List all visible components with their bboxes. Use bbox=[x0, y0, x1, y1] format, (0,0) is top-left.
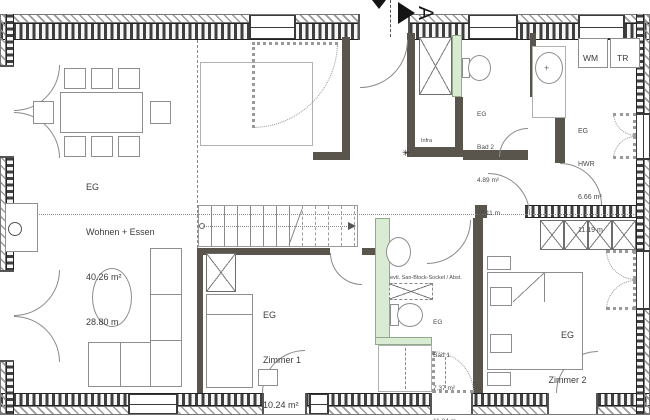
french-door-left-bottom-opening bbox=[0, 270, 14, 362]
room-name: HWR bbox=[578, 159, 603, 170]
entrance-door-arc bbox=[360, 40, 408, 88]
sink-bad1 bbox=[386, 237, 411, 267]
sofa-chaise bbox=[150, 248, 182, 387]
window-hwr-right bbox=[636, 113, 650, 160]
dining-table bbox=[60, 92, 143, 133]
wall-bad2-installation bbox=[452, 35, 462, 97]
wall-bad1-installation-stub bbox=[375, 337, 432, 345]
stove-flue-circle bbox=[8, 222, 22, 236]
room-area: 10.24 m² bbox=[263, 398, 301, 413]
stair-break-line bbox=[289, 209, 303, 245]
nightstand-zimmer2 bbox=[487, 256, 511, 270]
floor-plan-canvas: A bbox=[0, 0, 650, 420]
window-hwr-top bbox=[578, 15, 625, 39]
stair-direction-arrow-icon bbox=[348, 222, 356, 230]
staircase bbox=[198, 205, 358, 247]
bed-zimmer1-pillow-line bbox=[207, 314, 252, 315]
dining-chair bbox=[64, 136, 86, 157]
sanitary-block-dashed bbox=[389, 283, 433, 300]
sofa-cushion-line bbox=[151, 340, 181, 341]
french-door-left-bottom-leaf1-arc bbox=[14, 270, 60, 316]
room-floor: EG bbox=[433, 317, 456, 328]
section-marker-label: A bbox=[413, 6, 437, 20]
room-label-bad1: EG Bad 1 7.37 m² 11.34 m bbox=[433, 295, 456, 420]
shower-bad1-divider bbox=[405, 348, 406, 389]
dining-chair bbox=[150, 101, 171, 124]
wardrobe-cell-icon bbox=[612, 220, 636, 250]
french-door-left-top-opening bbox=[0, 65, 14, 158]
room-name: Zimmer 2 bbox=[510, 373, 625, 388]
zimmer2-right-door-leaf1-arc bbox=[606, 250, 636, 280]
room-name: Zimmer 1 bbox=[263, 353, 301, 368]
wall-bad1-installation bbox=[375, 218, 390, 345]
wall-top-outer bbox=[0, 14, 650, 23]
infra-label: Infra bbox=[421, 138, 432, 144]
room-label-hwr: EG HWR 6.66 m² 11.19 m bbox=[578, 104, 603, 258]
room-name: Bad 2 bbox=[477, 142, 500, 153]
bed-zimmer2-pillow bbox=[490, 334, 512, 353]
wall-zimmer2-left bbox=[473, 218, 483, 393]
entrance-path-dotted-arc bbox=[252, 42, 338, 128]
room-label-wohnen-essen: EG Wohnen + Essen 40.26 m² 28.80 m bbox=[86, 150, 155, 360]
zimmer1-door-arc bbox=[330, 253, 362, 285]
dining-chair bbox=[64, 68, 86, 89]
room-floor: EG bbox=[510, 328, 625, 343]
wall-infra-right bbox=[455, 97, 463, 157]
room-area: 4.89 m² bbox=[477, 175, 500, 186]
bed-zimmer1 bbox=[206, 294, 253, 388]
sink-bad2-tap: + bbox=[544, 63, 549, 73]
room-name: Wohnen + Essen bbox=[86, 225, 155, 240]
dryer-label: TR bbox=[617, 53, 628, 63]
room-label-zimmer1: EG Zimmer 1 10.24 m² 12.85 m bbox=[263, 278, 301, 420]
dining-chair bbox=[118, 68, 140, 89]
wardrobe-zimmer1-icon bbox=[206, 253, 236, 292]
wall-top-inner bbox=[0, 23, 650, 40]
dining-chair bbox=[33, 101, 54, 124]
sofa-cushion-line bbox=[151, 294, 181, 295]
bad1-door-arc bbox=[427, 220, 471, 264]
wall-zimmer1-left bbox=[197, 255, 203, 393]
sanitary-note: evtl. San-Block-Sockel / Abst. bbox=[390, 275, 462, 281]
hwr-right-door-leaf2-arc bbox=[613, 136, 636, 159]
window-bad2 bbox=[468, 15, 518, 39]
french-door-left-bottom-leaf2-arc bbox=[14, 316, 60, 362]
bad2-door-arc bbox=[499, 128, 528, 157]
room-area: 40.26 m² bbox=[86, 270, 155, 285]
window-living-bottom bbox=[128, 394, 178, 414]
wardrobe-cell-icon bbox=[540, 220, 564, 250]
toilet-bad2-bowl bbox=[468, 55, 491, 81]
wall-bad2-left bbox=[407, 33, 415, 157]
wall-hall-vestibule bbox=[342, 37, 350, 160]
room-perimeter: 11.19 m bbox=[578, 225, 603, 236]
room-label-bad2: EG Bad 2 4.89 m² 10.11 m bbox=[477, 87, 500, 241]
section-arrow-down-icon bbox=[372, 0, 386, 9]
stair-walk-start-circle bbox=[199, 223, 205, 229]
room-area: 7.37 m² bbox=[433, 383, 456, 394]
hwr-right-door-leaf1-arc bbox=[613, 113, 636, 136]
room-perimeter: 28.80 m bbox=[86, 315, 155, 330]
room-label-zimmer2: EG Zimmer 2 11.92 m² 13.83 m bbox=[510, 298, 625, 420]
shower-bad2-icon bbox=[419, 37, 452, 95]
section-line-vertical bbox=[390, 0, 391, 37]
wall-hall-return bbox=[313, 152, 350, 160]
nightstand-zimmer2 bbox=[487, 372, 511, 386]
dining-chair bbox=[91, 68, 113, 89]
room-area: 6.66 m² bbox=[578, 192, 603, 203]
room-floor: EG bbox=[86, 180, 155, 195]
stair-walk-line bbox=[203, 226, 349, 227]
washing-machine-label: WM bbox=[583, 53, 598, 63]
bed-zimmer2-pillow bbox=[490, 287, 512, 306]
room-floor: EG bbox=[263, 308, 301, 323]
room-name: Bad 1 bbox=[433, 350, 456, 361]
room-floor: EG bbox=[578, 126, 603, 137]
wall-right-outer bbox=[644, 14, 650, 414]
room-perimeter: 10.11 m bbox=[477, 208, 500, 219]
window-zimmer1-bottom bbox=[309, 394, 329, 414]
star-symbol: ✳ bbox=[402, 148, 410, 159]
room-perimeter: 11.34 m bbox=[433, 416, 456, 420]
window-zimmer2-right bbox=[636, 250, 650, 310]
toilet-bad1-bowl bbox=[397, 303, 423, 327]
room-floor: EG bbox=[477, 109, 500, 120]
wall-right-inner bbox=[636, 14, 644, 414]
window-top-hall bbox=[249, 15, 296, 39]
